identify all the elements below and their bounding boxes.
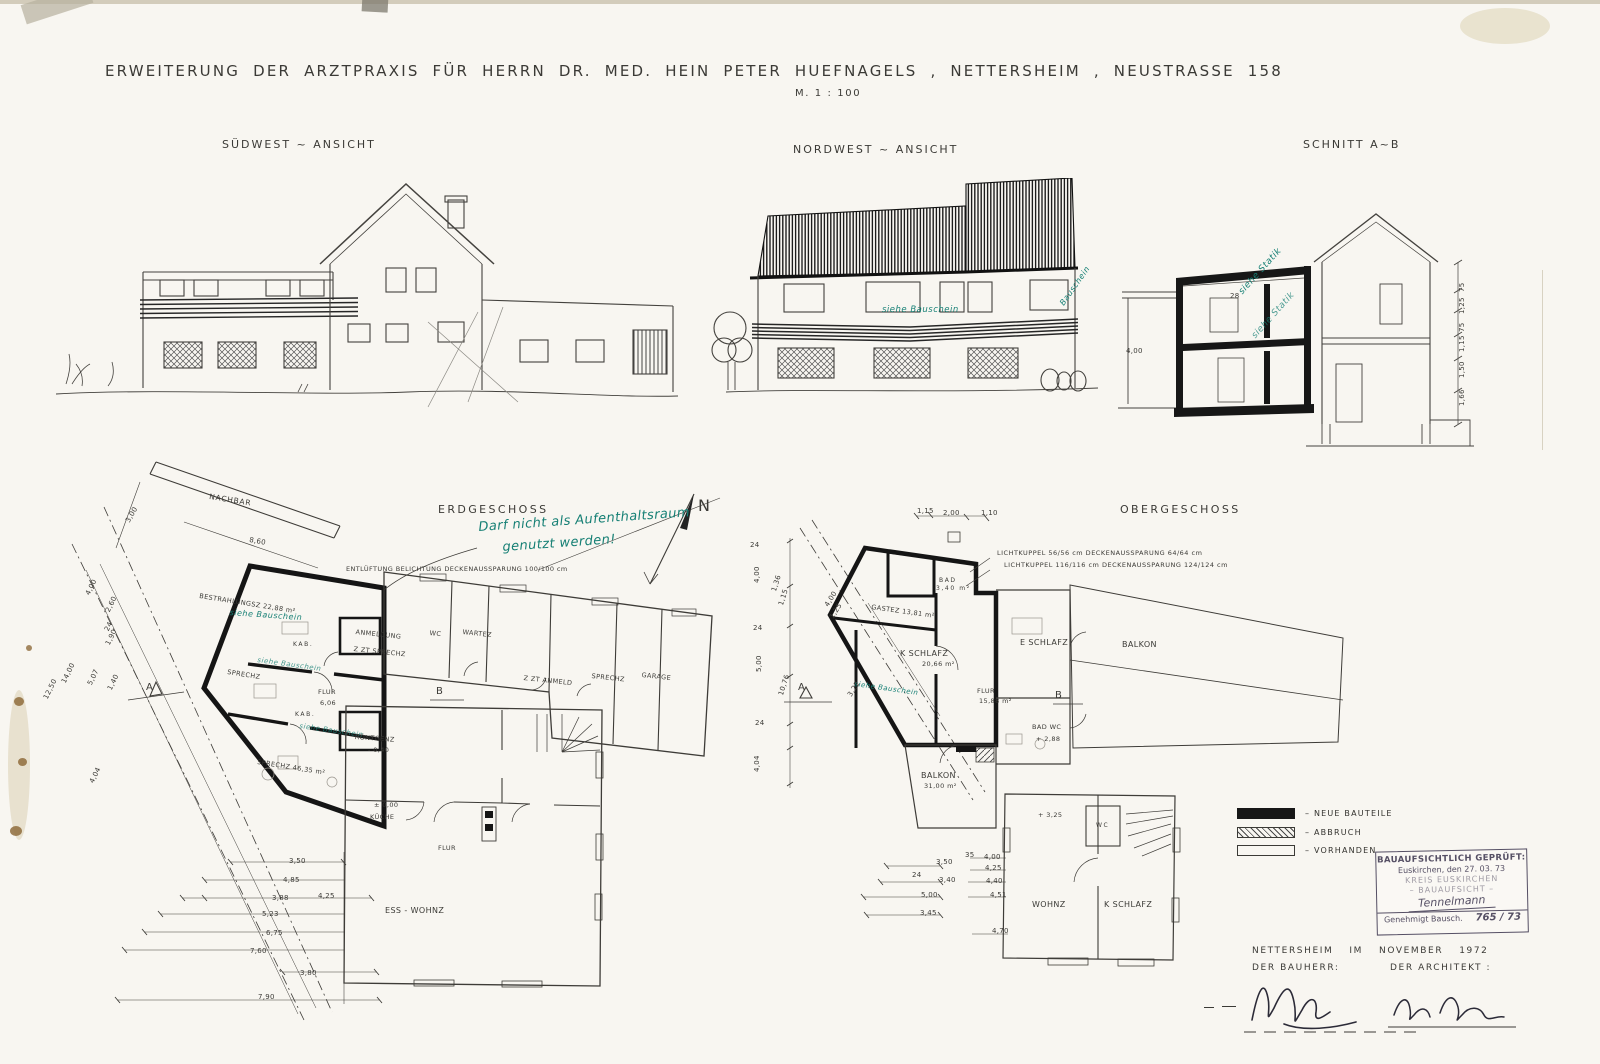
og-dim-top: 2,00 xyxy=(943,509,960,517)
schnitt-dim: 75 xyxy=(1458,322,1466,332)
og-dim: 4,04 xyxy=(753,755,761,772)
eg-entlueftung-note: ENTLÜFTUNG BELICHTUNG DECKENAUSSPARUNG 1… xyxy=(346,565,568,573)
schnitt-dim: 1,15 xyxy=(1458,335,1466,352)
room-label-flur2: FLUR xyxy=(438,844,456,852)
og-dim: 24 xyxy=(912,871,922,879)
paper-edge-top xyxy=(0,0,1600,4)
footer-monat: NOVEMBER xyxy=(1379,946,1443,956)
schnitt-dim: 1,66 xyxy=(1458,389,1466,406)
schnitt-dim-links: 4,00 xyxy=(1126,347,1143,355)
schnitt-dim: 1,25 xyxy=(1458,297,1466,314)
schnitt-dim: 1,50 xyxy=(1458,361,1466,378)
room-label-wohnz: WOHNZ xyxy=(1032,900,1066,909)
eg-dim: 3,50 xyxy=(289,857,306,865)
room-label-balkon-og: BALKON xyxy=(1122,640,1157,649)
og-dim: 4,70 xyxy=(992,927,1009,935)
paper-stain xyxy=(14,697,24,706)
room-label-flur-og: FLUR xyxy=(977,687,995,695)
room-value-flur1: 6,06 xyxy=(320,699,336,707)
eg-dim: 4,25 xyxy=(318,892,335,900)
paper-crease xyxy=(1542,270,1543,450)
eg-dim: 7,60 xyxy=(250,947,267,955)
legend-label: – NEUE BAUTEILE xyxy=(1305,809,1393,818)
og-dim: 35 xyxy=(965,851,975,859)
og-dim-top: 1,15 xyxy=(917,507,934,515)
drawing-scale: M. 1 : 100 xyxy=(795,88,861,99)
og-dim: 24 xyxy=(753,624,763,632)
legend-label: – VORHANDEN xyxy=(1305,846,1377,855)
tape-mark xyxy=(362,0,389,13)
room-label-k-schlafz2: K SCHLAFZ xyxy=(1104,900,1152,909)
room-label-k-schlafz: K SCHLAFZ xyxy=(900,649,948,658)
room-label-balkon-neu: BALKON xyxy=(921,771,956,780)
og-dim: 4,40 xyxy=(986,877,1003,885)
footer-place-date: NETTERSHEIM IM NOVEMBER 1972 xyxy=(1252,946,1489,956)
view-label-schnitt: SCHNITT A~B xyxy=(1303,138,1400,151)
paper-stain xyxy=(18,758,27,766)
architekt-signature xyxy=(1388,985,1523,1035)
og-dim-top: 1,10 xyxy=(981,509,998,517)
og-dim: 5,00 xyxy=(921,891,938,899)
og-lichtkuppel-note1: LICHTKUPPEL 56/56 cm DECKENAUSSPARUNG 64… xyxy=(997,549,1202,557)
room-label-kab2: KAB. xyxy=(295,711,315,718)
og-dim: 3,50 xyxy=(936,858,953,866)
og-lichtkuppel-note2: LICHTKUPPEL 116/116 cm DECKENAUSSPARUNG … xyxy=(1004,561,1228,569)
drawing-title: ERWEITERUNG DER ARZTPRAXIS FÜR HERRN DR.… xyxy=(105,62,1283,80)
og-dim: 3,45 xyxy=(920,909,937,917)
room-label-wc: WC xyxy=(429,629,442,638)
eg-dim: 3,88 xyxy=(272,894,289,902)
og-dim: 24 xyxy=(755,719,765,727)
section-marker-b: B xyxy=(436,686,444,697)
section-marker-a: A xyxy=(146,682,154,693)
room-label-kab1: KAB. xyxy=(293,641,313,648)
room-value-roentgenz: - 0,40 xyxy=(368,746,389,754)
room-value-bad-wc: + 2,88 xyxy=(1036,735,1060,743)
eg-dim: 6,75 xyxy=(266,929,283,937)
schnitt-dim: 75 xyxy=(1458,282,1466,292)
legend-item-vorhanden: – VORHANDEN xyxy=(1237,845,1377,856)
og-dim: 4,25 xyxy=(985,864,1002,872)
approval-stamp: BAUAUFSICHTLICH GEPRÜFT: Euskirchen, den… xyxy=(1375,848,1529,935)
dash-mark xyxy=(1222,1006,1236,1007)
og-dim: 4,00 xyxy=(753,566,761,583)
scanned-architectural-drawing: ERWEITERUNG DER ARZTPRAXIS FÜR HERRN DR.… xyxy=(0,0,1600,1064)
section-marker-a-og: A xyxy=(798,682,806,693)
legend-item-abbruch: – ABBRUCH xyxy=(1237,827,1362,838)
north-arrow-label: N xyxy=(698,496,712,515)
suedwest-elevation-drawing xyxy=(48,172,693,427)
footer-jahr: 1972 xyxy=(1459,946,1488,956)
eg-dim: 7,90 xyxy=(258,993,275,1001)
og-dim: 24 xyxy=(750,541,760,549)
room-label-bad: BAD xyxy=(939,577,957,584)
view-label-nordwest: NORDWEST ~ ANSICHT xyxy=(793,143,958,156)
schnitt-dim-decke: 28 xyxy=(1230,292,1240,300)
legend-swatch-outline xyxy=(1237,845,1295,856)
og-dim: 3,40 xyxy=(939,876,956,884)
stamp-number: 765 / 73 xyxy=(1476,912,1522,925)
stamp-line5: Genehmigt Bausch. xyxy=(1384,914,1463,926)
schnitt-section-drawing xyxy=(1118,198,1498,448)
eg-dim: 3,80 xyxy=(300,969,317,977)
room-value-k-schlafz: 20,66 m² xyxy=(922,660,955,668)
room-label-wc-og: WC xyxy=(1096,822,1109,829)
section-marker-b-og: B xyxy=(1055,690,1063,701)
obergeschoss-plan-drawing xyxy=(768,498,1378,978)
og-dim: 4,00 xyxy=(984,853,1001,861)
footer-im: IM xyxy=(1349,946,1363,956)
og-dim: 5,00 xyxy=(755,655,763,672)
legend-swatch-hatch xyxy=(1237,827,1295,838)
legend-swatch-solid xyxy=(1237,808,1295,819)
dash-mark xyxy=(1204,1007,1214,1008)
eg-dim: 4,85 xyxy=(283,876,300,884)
room-label-bad-wc: BAD WC xyxy=(1032,723,1061,731)
eg-dim: 5,23 xyxy=(262,910,279,918)
room-niveau-og: + 3,25 xyxy=(1038,811,1062,819)
paper-stain xyxy=(1460,8,1550,44)
room-value-balkon-neu: 31,00 m² xyxy=(924,782,957,790)
room-value-bad: 3,40 m² xyxy=(936,585,971,592)
room-label-flur1: FLUR xyxy=(318,688,336,696)
paper-stain xyxy=(10,826,22,836)
note-siehe-bauschein-nordwest: siehe Bauschein xyxy=(882,305,959,315)
room-value-flur-og: 15,88 m² xyxy=(979,697,1012,705)
room-label-ess-wohnz: ESS - WOHNZ xyxy=(385,906,444,915)
view-label-suedwest: SÜDWEST ~ ANSICHT xyxy=(222,138,376,151)
room-label-kueche: KÜCHE xyxy=(370,813,394,821)
room-label-e-schlafz: E SCHLAFZ xyxy=(1020,638,1068,647)
footer-ort: NETTERSHEIM xyxy=(1252,946,1333,956)
tape-mark xyxy=(21,0,94,24)
legend-label: – ABBRUCH xyxy=(1305,828,1362,837)
room-niveau-kueche: ± 0,00 xyxy=(374,801,398,809)
og-dim: 4,51 xyxy=(990,891,1007,899)
legend-item-neue-bauteile: – NEUE BAUTEILE xyxy=(1237,808,1393,819)
